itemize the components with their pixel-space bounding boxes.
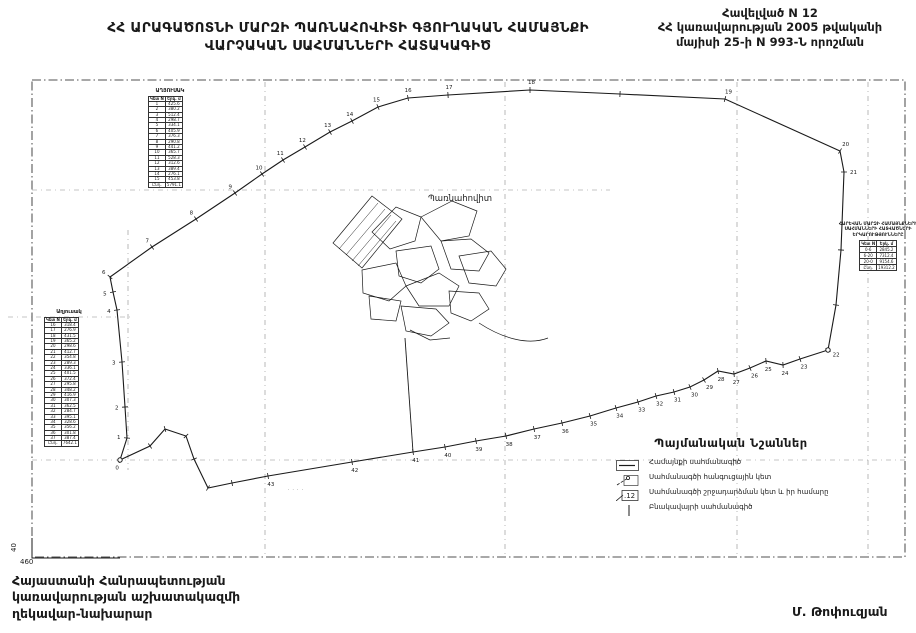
legend: Պայմանական Նշաններ Համայնքի սահմանագիծՍա… [616, 436, 846, 516]
boundary-line-icon [616, 456, 642, 467]
boundary-point-number: 21 [850, 170, 857, 176]
boundary-point-number: 28 [718, 377, 725, 383]
boundary-point-number: 5 [103, 292, 107, 298]
turn-point-icon: .12 [616, 486, 642, 497]
settlement-hatch-line [339, 203, 378, 249]
table-row: Ընդ.5791.1 [149, 182, 183, 187]
boundary-junction-point [118, 458, 122, 462]
legend-item-settlement-line: Բնակավայրի սահմանագիծ [616, 501, 846, 512]
boundary-point-tick [267, 473, 268, 479]
settlement-parcel [479, 323, 548, 341]
table-cell: 7642.1 [61, 441, 78, 446]
boundary-point-number: 27 [733, 380, 740, 386]
page-title: ՀՀ ԱՐԱԳԱԾՈՏՆԻ ՄԱՐԶԻ ՊԱՌՆԱՀՈՎԻՏԻ ԳՅՈՒՂԱԿԱ… [88, 20, 608, 55]
boundary-point-number: 25 [765, 367, 772, 373]
settlement-parcel [362, 263, 406, 301]
annex-line1: Հավելված N 12 [628, 6, 912, 20]
point-table-top-left-title: ԱՂՅՈՒՍԱԿ [148, 89, 192, 95]
legend-item-label: Սահմանագծի հանգուցային կետ [649, 473, 771, 481]
boundary-point-number: 42 [351, 468, 358, 474]
legend-item-turn-point: .12Սահմանագծի շրջադարձման կետ և իր համար… [616, 486, 846, 497]
settlement-hatch-line [346, 209, 385, 255]
table-row: Ընդ.7642.1 [45, 441, 79, 446]
boundary-point-number: 40 [444, 453, 451, 459]
map-document-page: 0123456789101112131415161718192021222324… [0, 0, 916, 633]
boundary-point-number: 6 [102, 270, 106, 276]
boundary-point-number: 30 [691, 392, 698, 398]
annex-line2: ՀՀ կառավարության 2005 թվականի [628, 20, 912, 34]
boundary-point-number: 12 [299, 138, 306, 144]
point-table-left: Աղյուսակ Կետ NԵրկ. մ16318.417276.918431.… [44, 310, 94, 447]
table-cell: Ընդ. [860, 265, 877, 271]
boundary-point-number: 14 [346, 112, 353, 118]
boundary-point-number: 3 [112, 361, 116, 367]
page-title-line1: ՀՀ ԱՐԱԳԱԾՈՏՆԻ ՄԱՐԶԻ ՊԱՌՆԱՀՈՎԻՏԻ ԳՅՈՒՂԱԿԱ… [88, 20, 608, 38]
legend-item-label: Համայնքի սահմանագիծ [649, 458, 741, 466]
settlement-outline [333, 196, 402, 268]
signatory-line3: ղեկավար-նախարար [12, 606, 240, 622]
boundary-map-canvas: 0123456789101112131415161718192021222324… [0, 0, 916, 633]
boundary-point-number: 16 [405, 88, 412, 94]
point-table-top-left: ԱՂՅՈՒՍԱԿ Կետ NԵրկ. մ1425.62380.23512.442… [148, 89, 192, 188]
boundary-point-number: 17 [445, 85, 452, 91]
boundary-point-number: 36 [562, 429, 569, 435]
boundary-point-tick [233, 191, 236, 196]
signatory-title-block: Հայաստանի Հանրապետության կառավարության ա… [12, 573, 240, 622]
settlement-parcel [410, 330, 450, 340]
signatory-line1: Հայաստանի Հանրապետության [12, 573, 240, 589]
settlement-line-icon [616, 501, 642, 512]
settlement-parcel [449, 291, 489, 321]
boundary-point-tick [260, 172, 263, 177]
table-header-cell: Կետ N [860, 241, 877, 247]
boundary-point-tick [352, 459, 353, 465]
svg-text:.12: .12 [624, 492, 635, 500]
signature-name: Մ. Թոփուզյան [792, 604, 888, 619]
boundary-point-tick [734, 371, 735, 377]
boundary-point-number: 19 [725, 89, 732, 95]
settlement-parcel [401, 306, 449, 336]
boundary-point-tick [475, 438, 476, 444]
boundary-point-tick [833, 305, 839, 306]
boundary-point-number: 22 [833, 352, 840, 358]
legend-item-boundary-line: Համայնքի սահմանագիծ [616, 456, 846, 467]
boundary-point-number: 7 [146, 238, 150, 244]
table-cell: 9154.6 [877, 259, 897, 265]
boundary-point-number: 24 [781, 371, 788, 377]
annex-line3: մայիսի 25-ի N 993-Ն որոշման [628, 35, 912, 49]
boundary-point-tick [150, 245, 153, 250]
boundary-point-tick [194, 216, 197, 221]
neighbor-box-grid: Կետ NԵրկ. մ0-62845.26-207312.420-09154.6… [859, 240, 896, 271]
table-cell: Ընդ. [45, 441, 62, 446]
settlement-parcel [421, 201, 477, 241]
settlement-parcel [406, 273, 459, 306]
table-cell: 2845.2 [877, 247, 897, 253]
boundary-point-tick [281, 157, 284, 162]
frame-coordinate-label-bottom: 460 [20, 558, 33, 566]
boundary-point-number: 4 [107, 309, 111, 315]
boundary-point-number: 20 [842, 142, 849, 148]
table-row: Ընդ.19312.2 [860, 265, 896, 271]
boundary-point-number: 13 [324, 123, 331, 129]
boundary-point-number: 32 [656, 402, 663, 408]
boundary-point-number: 2 [115, 406, 119, 412]
boundary-point-number: 34 [616, 414, 623, 420]
page-title-line2: ՎԱՐՉԱԿԱՆ ՍԱՀՄԱՆՆԵՐԻ ՀԱՏԱԿԱԳԻԾ [88, 38, 608, 56]
annex-reference: Հավելված N 12 ՀՀ կառավարության 2005 թվակ… [628, 6, 912, 49]
boundary-point-number: 0 [115, 466, 119, 472]
boundary-point-number: 43 [267, 482, 274, 488]
frame-corner-mark [32, 538, 120, 558]
boundary-point-number: 33 [638, 408, 645, 414]
boundary-point-number: 26 [751, 373, 758, 379]
settlement-hatch-line [358, 221, 396, 266]
boundary-point-tick [766, 358, 767, 364]
boundary-point-number: 31 [674, 398, 681, 404]
signatory-line2: կառավարության աշխատակազմի [12, 589, 240, 605]
boundary-point-tick [114, 310, 120, 311]
boundary-point-number: 1 [117, 435, 121, 441]
boundary-point-number: 8 [190, 210, 194, 216]
point-table-top-left-grid: Կետ NԵրկ. մ1425.62380.23512.44298.75334.… [148, 96, 183, 189]
neighbor-box-line3: ԵՐԿԱՐՈՒԹՅՈՒՆՆԵՐԸ [836, 233, 916, 238]
boundary-point-number: 29 [706, 385, 713, 391]
legend-item-junction-point: Սահմանագծի հանգուցային կետ [616, 471, 846, 482]
boundary-point-number: 41 [412, 458, 419, 464]
boundary-point-number: 18 [528, 80, 535, 86]
junction-point-icon [616, 471, 642, 482]
boundary-point-number: 11 [277, 151, 284, 157]
boundary-point-number: 10 [255, 165, 262, 171]
boundary-point-tick [444, 444, 445, 450]
community-boundary [110, 90, 844, 488]
boundary-point-number: 39 [475, 447, 482, 453]
settlement-hatch-line [352, 215, 391, 261]
table-cell: Ընդ. [149, 182, 166, 187]
settlement-parcel [459, 251, 506, 286]
small-map-annotation: · · · · [288, 487, 304, 492]
boundary-point-number: 15 [373, 98, 380, 104]
table-cell: 19312.2 [877, 265, 897, 271]
boundary-point-number: 38 [506, 442, 513, 448]
neighbor-box: ՀԱՐԵՎԱՆ ՄԱՐԶԻ ՀԱՄԱՅՆՔՆԵՐԻ ՍԱՀՄԱՆՆԵՐԻ ՀԱՏ… [836, 222, 916, 271]
boundary-point-tick [407, 95, 408, 101]
neighbor-box-line2: ՍԱՀՄԱՆՆԵՐԻ ՀԱՏՎԱԾՆԵՐԻ [836, 227, 916, 232]
legend-title: Պայմանական Նշաններ [616, 436, 846, 450]
point-table-left-title: Աղյուսակ [44, 310, 94, 316]
boundary-point-number: 37 [534, 435, 541, 441]
point-table-left-grid: Կետ NԵրկ. մ16318.417276.918431.519365.22… [44, 317, 79, 447]
table-cell: 7312.4 [877, 253, 897, 259]
boundary-point-tick [124, 438, 130, 439]
frame-coordinate-label-left: 40 [10, 543, 18, 552]
settlement-access-line [405, 338, 413, 452]
settlement-parcel [372, 207, 421, 249]
boundary-point-number: 35 [590, 422, 597, 428]
boundary-point-number: 9 [228, 184, 232, 190]
boundary-point-number: 23 [801, 365, 808, 371]
legend-item-label: Բնակավայրի սահմանագիծ [649, 503, 753, 511]
legend-item-label: Սահմանագծի շրջադարձման կետ և իր համարը [649, 488, 829, 496]
table-cell: 5791.1 [165, 182, 182, 187]
boundary-junction-point [826, 348, 830, 352]
village-name-label: Պառնահովիտ [428, 194, 492, 204]
